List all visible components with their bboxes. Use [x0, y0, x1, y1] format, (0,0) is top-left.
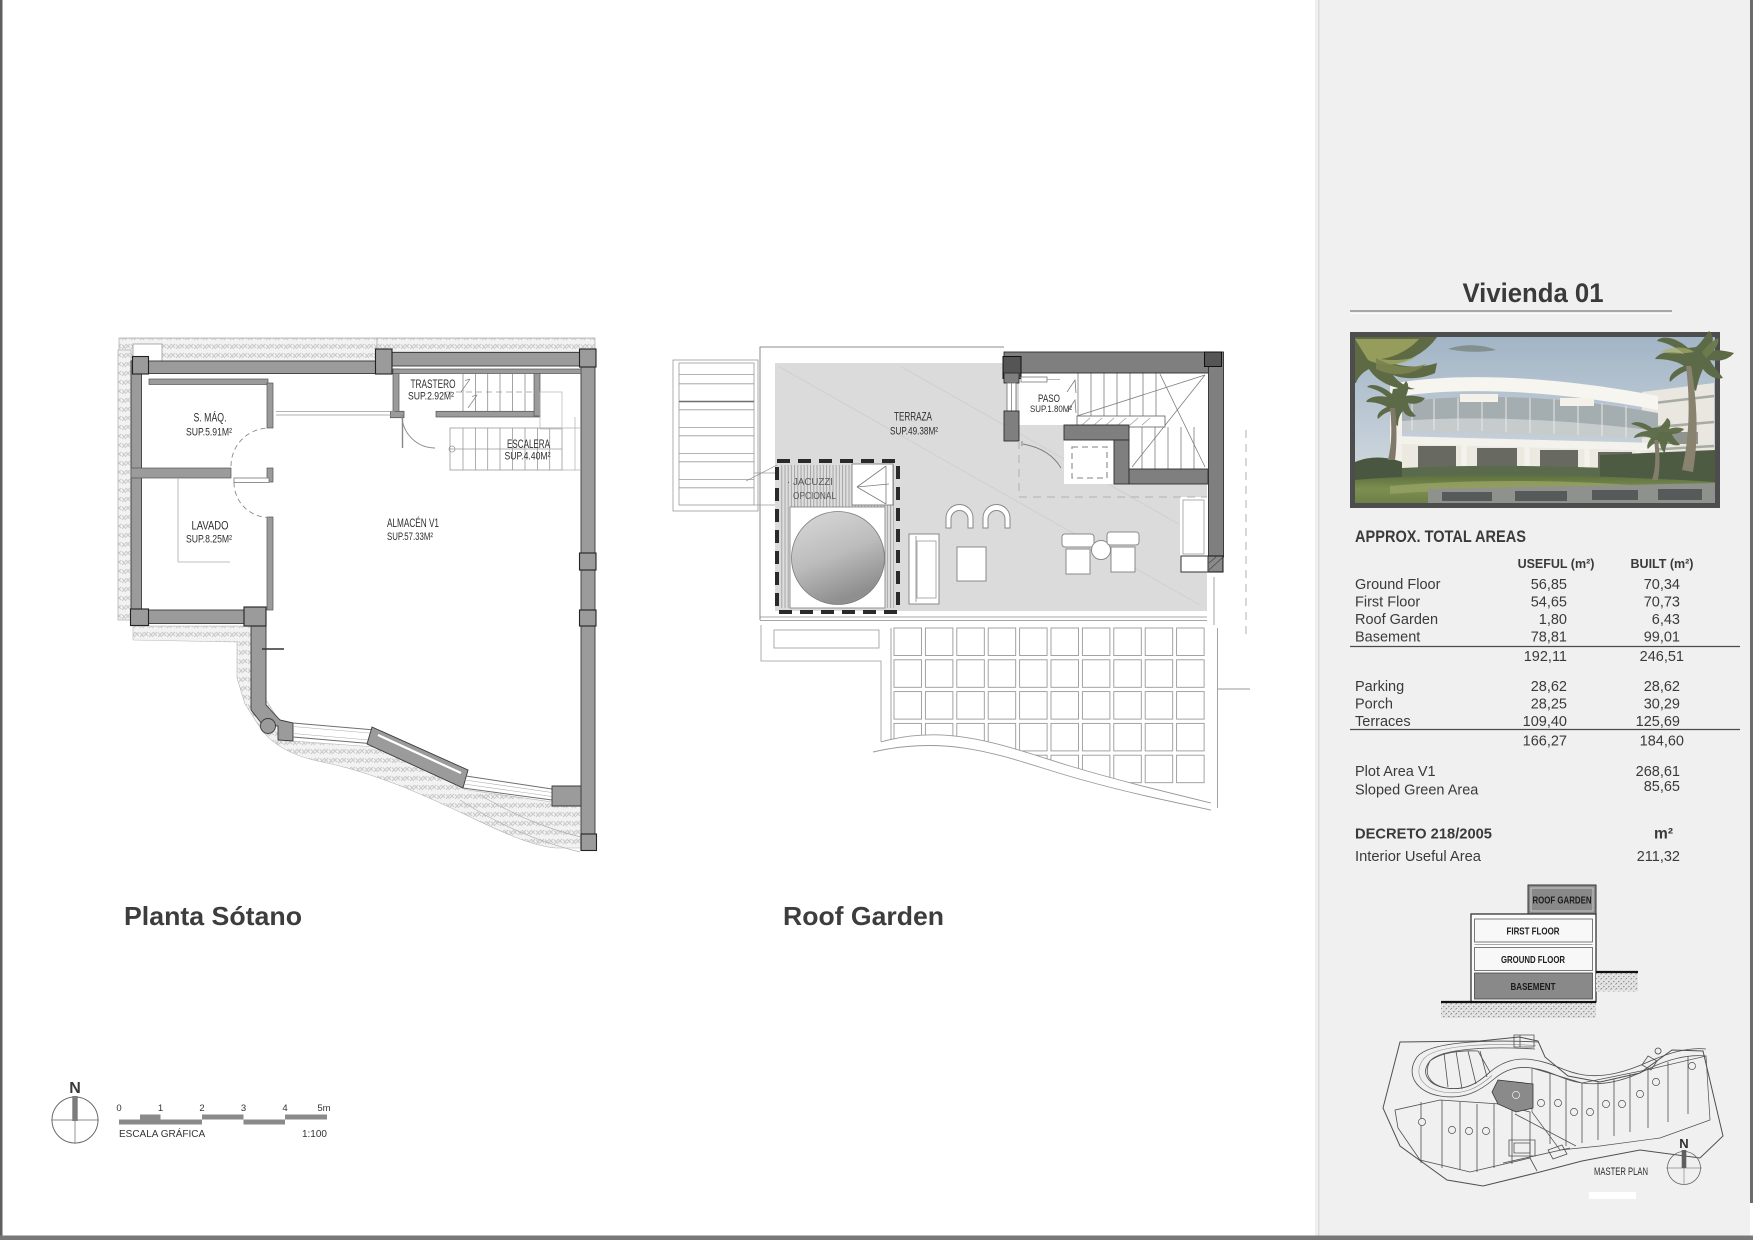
- svg-text:78,81: 78,81: [1531, 630, 1567, 646]
- svg-text:54,65: 54,65: [1531, 595, 1567, 611]
- svg-text:FIRST FLOOR: FIRST FLOOR: [1507, 927, 1561, 938]
- svg-text:BASEMENT: BASEMENT: [1511, 982, 1556, 993]
- svg-text:125,69: 125,69: [1636, 714, 1680, 730]
- svg-text:m²: m²: [1654, 826, 1673, 843]
- svg-text:SUP.49.38M²: SUP.49.38M²: [890, 426, 938, 438]
- svg-text:ESCALA GRÁFICA: ESCALA GRÁFICA: [119, 1127, 205, 1140]
- svg-text:Planta Sótano: Planta Sótano: [124, 901, 302, 931]
- svg-text:SUP.57.33M²: SUP.57.33M²: [387, 531, 433, 543]
- svg-text:6,43: 6,43: [1652, 612, 1680, 628]
- svg-text:1:100: 1:100: [302, 1129, 327, 1140]
- svg-text:28,62: 28,62: [1644, 679, 1680, 695]
- svg-text:192,11: 192,11: [1524, 649, 1567, 665]
- svg-text:N: N: [69, 1080, 81, 1097]
- svg-text:0: 0: [116, 1103, 121, 1114]
- svg-text:OPCIONAL: OPCIONAL: [793, 490, 836, 502]
- svg-text:ROOF GARDEN: ROOF GARDEN: [1533, 896, 1592, 907]
- svg-text:GROUND FLOOR: GROUND FLOOR: [1501, 955, 1566, 966]
- svg-text:First Floor: First Floor: [1355, 595, 1420, 611]
- svg-text:4: 4: [282, 1103, 287, 1114]
- svg-text:Roof Garden: Roof Garden: [1355, 612, 1438, 628]
- svg-text:Roof Garden: Roof Garden: [783, 901, 944, 931]
- svg-text:Terraces: Terraces: [1355, 714, 1411, 730]
- svg-text:85,65: 85,65: [1644, 779, 1680, 795]
- svg-text:268,61: 268,61: [1636, 764, 1680, 780]
- svg-text:Ground Floor: Ground Floor: [1355, 577, 1441, 593]
- svg-text:BUILT (m²): BUILT (m²): [1631, 557, 1694, 571]
- svg-text:28,25: 28,25: [1531, 697, 1567, 713]
- svg-text:TERRAZA: TERRAZA: [894, 410, 932, 424]
- svg-text:2: 2: [199, 1103, 204, 1114]
- svg-text:211,32: 211,32: [1637, 849, 1680, 865]
- svg-text:Porch: Porch: [1355, 697, 1393, 713]
- svg-text:184,60: 184,60: [1640, 734, 1684, 750]
- svg-text:TRASTERO: TRASTERO: [411, 377, 456, 391]
- svg-text:ALMACÉN V1: ALMACÉN V1: [387, 515, 439, 530]
- svg-text:Sloped Green Area: Sloped Green Area: [1355, 783, 1479, 799]
- svg-text:246,51: 246,51: [1640, 649, 1684, 665]
- svg-text:99,01: 99,01: [1644, 630, 1680, 646]
- svg-text:Plot Area V1: Plot Area V1: [1355, 764, 1436, 780]
- svg-text:3: 3: [241, 1103, 246, 1114]
- svg-text:30,29: 30,29: [1644, 697, 1680, 713]
- svg-text:Vivienda 01: Vivienda 01: [1463, 278, 1604, 308]
- svg-text:28,62: 28,62: [1531, 679, 1567, 695]
- svg-text:SUP.4.40M²: SUP.4.40M²: [505, 451, 551, 463]
- svg-text:56,85: 56,85: [1531, 577, 1567, 593]
- svg-text:Interior Useful Area: Interior Useful Area: [1355, 849, 1482, 865]
- svg-text:1,80: 1,80: [1539, 612, 1567, 628]
- svg-text:Parking: Parking: [1355, 679, 1404, 695]
- svg-text:SUP.5.91M²: SUP.5.91M²: [186, 427, 232, 439]
- svg-text:166,27: 166,27: [1523, 734, 1567, 750]
- svg-text:SUP.8.25M²: SUP.8.25M²: [186, 534, 232, 546]
- svg-text:SUP.2.92M²: SUP.2.92M²: [408, 391, 454, 403]
- svg-text:DECRETO 218/2005: DECRETO 218/2005: [1355, 826, 1492, 843]
- svg-text:70,34: 70,34: [1644, 577, 1680, 593]
- svg-text:5m: 5m: [317, 1103, 330, 1114]
- svg-text:1: 1: [158, 1103, 163, 1114]
- svg-text:Basement: Basement: [1355, 630, 1420, 646]
- svg-text:USEFUL (m²): USEFUL (m²): [1518, 557, 1595, 571]
- svg-text:MASTER PLAN: MASTER PLAN: [1594, 1166, 1648, 1178]
- svg-text:S. MÁQ.: S. MÁQ.: [194, 410, 227, 425]
- svg-text:70,73: 70,73: [1644, 595, 1680, 611]
- svg-text:N: N: [1679, 1136, 1688, 1151]
- svg-text:LAVADO: LAVADO: [192, 519, 229, 533]
- svg-text:109,40: 109,40: [1523, 714, 1567, 730]
- svg-text:APPROX. TOTAL AREAS: APPROX. TOTAL AREAS: [1355, 527, 1526, 546]
- svg-text:· JACUZZI: · JACUZZI: [787, 476, 833, 488]
- svg-text:ESCALERA: ESCALERA: [507, 437, 550, 451]
- svg-text:SUP.1.80M²: SUP.1.80M²: [1030, 404, 1072, 415]
